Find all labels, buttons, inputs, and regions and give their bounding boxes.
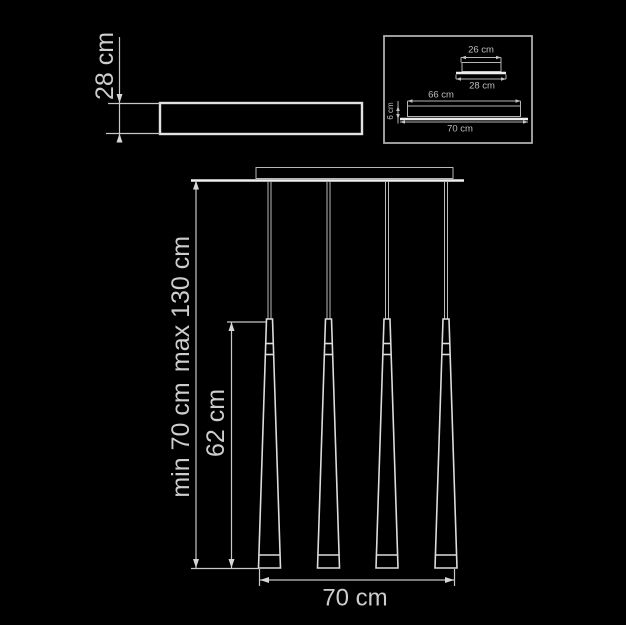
arrow-up-icon bbox=[229, 322, 235, 331]
shade-dimension: 62 cm bbox=[202, 322, 266, 568]
arrow-left-icon bbox=[400, 120, 405, 124]
arrow-down-icon bbox=[193, 559, 199, 568]
suspension-max-label: max 130 cm bbox=[167, 236, 195, 372]
canopy-top-width-label: 26 cm bbox=[468, 44, 494, 55]
lamp-dimension-drawing: 28 cm 26 cm 28 cm 66 cm bbox=[0, 0, 626, 625]
bar-height-label: 6 cm bbox=[386, 102, 395, 120]
arrow-up-icon bbox=[396, 106, 400, 111]
overall-width-label: 70 cm bbox=[322, 584, 387, 611]
arrow-right-icon bbox=[523, 120, 528, 124]
canopy-base-width-label: 28 cm bbox=[469, 80, 495, 91]
arrow-up-icon bbox=[193, 181, 199, 190]
inset-bar-profile: 66 cm 70 cm 6 cm bbox=[386, 89, 528, 134]
front-view: max 130 cm min 70 cm 62 cm 70 cm bbox=[167, 168, 464, 612]
pendant-cone bbox=[435, 319, 457, 568]
bar-base-length-label: 70 cm bbox=[447, 123, 473, 134]
pendant-cone bbox=[376, 319, 398, 568]
bar-body-length-label: 66 cm bbox=[428, 89, 454, 100]
canopy-depth-label: 28 cm bbox=[91, 32, 119, 100]
suspension-dimension: max 130 cm min 70 cm bbox=[167, 181, 199, 569]
suspension-min-label: min 70 cm bbox=[167, 382, 195, 497]
canopy-top-view: 28 cm bbox=[91, 32, 362, 143]
arrow-right-icon bbox=[496, 56, 501, 60]
canopy-rect bbox=[160, 103, 362, 134]
pendant-cones bbox=[259, 319, 458, 568]
detail-inset: 26 cm 28 cm 66 cm bbox=[384, 36, 532, 143]
ceiling-bar-rect bbox=[256, 168, 453, 179]
arrow-down-icon bbox=[396, 114, 400, 119]
bar-body-rect bbox=[408, 106, 521, 117]
arrow-right-icon bbox=[445, 577, 454, 583]
pendant-cone bbox=[259, 319, 281, 568]
arrow-right-icon bbox=[501, 77, 506, 81]
shade-length-label: 62 cm bbox=[202, 389, 230, 457]
pendant-cone bbox=[318, 319, 340, 568]
canopy-body-rect bbox=[462, 63, 501, 72]
inset-canopy-profile: 26 cm 28 cm bbox=[456, 44, 506, 91]
arrow-left-icon bbox=[260, 577, 269, 583]
arrow-left-icon bbox=[456, 77, 461, 81]
arrow-down-icon bbox=[229, 559, 235, 568]
drawing-canvas: 28 cm 26 cm 28 cm 66 cm bbox=[0, 0, 626, 625]
arrow-up-icon bbox=[117, 134, 123, 143]
arrow-left-icon bbox=[461, 56, 466, 60]
arrow-left-icon bbox=[408, 99, 413, 103]
arrow-right-icon bbox=[516, 99, 521, 103]
width-dimension: 70 cm bbox=[191, 569, 455, 612]
pendant-cords bbox=[268, 181, 448, 319]
